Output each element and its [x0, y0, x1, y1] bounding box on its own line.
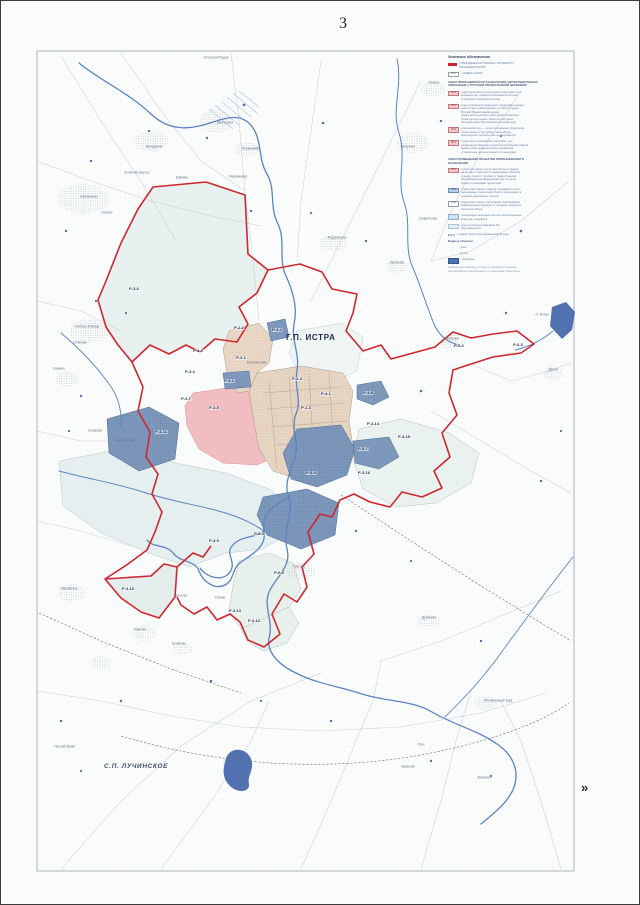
legend-text: территория сложившейся застройки, дляраз… — [461, 140, 528, 154]
legend-row-item: Р-3территория сложившейся застройки, для… — [448, 140, 570, 154]
legend-row-item: УТВЕРЖДАЕМАЯ ГРАНИЦА ГОРОДСКОГОПОСЕЛЕНИЯ… — [448, 62, 570, 69]
legend-symbol-swatch1 — [448, 214, 459, 220]
legend-text: территория объекта культурного наследия … — [461, 91, 521, 102]
legend-text: зона охраняемого природного ландшафта до… — [461, 104, 524, 125]
legend-row-item: - водоёмы — [448, 258, 570, 264]
legend-row-item: - ручьи — [448, 252, 570, 256]
legend-symbol-pinkchip: Р-3 — [448, 168, 459, 174]
legend-symbol-bluechip: Р-3 — [448, 188, 459, 194]
legend-text: - реки — [459, 246, 466, 250]
legend-row-item: Р-3территория объекта культурного наслед… — [448, 91, 570, 102]
legend-symbol-pinkchip: Р-3 — [448, 140, 459, 146]
legend-row-item: Р-3территория вдоль русла реки Истры и п… — [448, 168, 570, 186]
legend-row-item: Р-3территория парков, скверов, бульваров… — [448, 188, 570, 199]
legend-text: УТВЕРЖДАЕМАЯ ГРАНИЦА ГОРОДСКОГОПОСЕЛЕНИЯ… — [459, 62, 514, 69]
legend-text: территория лесов и лесопарков, выполняющ… — [461, 201, 521, 212]
legend-text: ЗОНЫ РАЗМЕЩЕНИЯ ОБЪЕКТОВ РЕКРЕАЦИОННОГОН… — [448, 158, 524, 165]
legend-row-item: Р-3зона охраняемого природного ландшафта… — [448, 104, 570, 125]
legend-row-item: Р-3-1- индекс территории рекреационной з… — [448, 233, 570, 237]
legend-text: территория парков, скверов, бульваров и … — [461, 188, 521, 199]
legend-text: зоны затопления паводком 1%обеспеченност… — [461, 224, 499, 231]
legend-text: территория вдоль русла реки Истры и пруд… — [461, 168, 520, 186]
legend-row-section: ЗОНЫ РАЗМЕЩЕНИЯ ОБЪЕКТОВ РЕКРЕАЦИОННОГОН… — [448, 158, 570, 165]
scanned-map-page: 3 — [0, 0, 640, 905]
legend-row-item: - реки — [448, 246, 570, 250]
legend-text: - ручьи — [459, 252, 468, 256]
legend-rows: УТВЕРЖДАЕМАЯ ГРАНИЦА ГОРОДСКОГОПОСЕЛЕНИЯ… — [448, 62, 570, 273]
legend-row-subheader: Водные объекты: — [448, 240, 570, 244]
legend-text: - водоёмы — [461, 258, 474, 262]
legend-title: Условные обозначения — [448, 55, 570, 59]
legend-row-item: прибрежные защитные полосы и водоохранны… — [448, 214, 570, 221]
legend-row-item: Р-3«Городской лес» — зона озеленённых те… — [448, 127, 570, 138]
legend-symbol-pinkchip: Р-3 — [448, 91, 459, 97]
legend-index-label: Р-3-1 — [448, 233, 455, 237]
legend-text: ЗОНЫ РЕКРЕАЦИОННОГО НАЗНАЧЕНИЯ, НЕПОСРЕД… — [448, 81, 538, 88]
legend-text: прибрежные защитные полосы и водоохранны… — [461, 214, 521, 221]
legend-row-section: ЗОНЫ РЕКРЕАЦИОННОГО НАЗНАЧЕНИЯ, НЕПОСРЕД… — [448, 81, 570, 88]
legend-symbol-waterswatch — [448, 258, 459, 264]
legend-symbol-pinkchip: Р-3 — [448, 127, 459, 133]
legend-text: «Городской лес» — зона озеленённых терри… — [461, 127, 525, 138]
legend-row-footnote: Границы зон показаны условно и подлежат … — [448, 266, 570, 273]
legend-symbol-swatch2 — [448, 224, 459, 230]
legend-symbol-plainchip: Р-1 — [448, 72, 459, 78]
legend-row-item: Р-3территория лесов и лесопарков, выполн… — [448, 201, 570, 212]
legend-symbol-plainchip: Р-3 — [448, 201, 459, 207]
legend-text: - ИНДЕКС ЗОНЫ — [461, 72, 482, 76]
legend-row-item: зоны затопления паводком 1%обеспеченност… — [448, 224, 570, 231]
map-legend: Условные обозначения УТВЕРЖДАЕМАЯ ГРАНИЦ… — [448, 55, 570, 276]
legend-row-item: Р-1- ИНДЕКС ЗОНЫ — [448, 72, 570, 78]
legend-text: Водные объекты: — [448, 240, 473, 244]
legend-text: Границы зон показаны условно и подлежат … — [448, 266, 520, 273]
legend-text: - индекс территории рекреационной зоны — [457, 233, 509, 237]
legend-symbol-redline — [448, 63, 457, 65]
next-page-marker[interactable]: » — [581, 780, 588, 795]
legend-symbol-pinkchip: Р-3 — [448, 104, 459, 110]
